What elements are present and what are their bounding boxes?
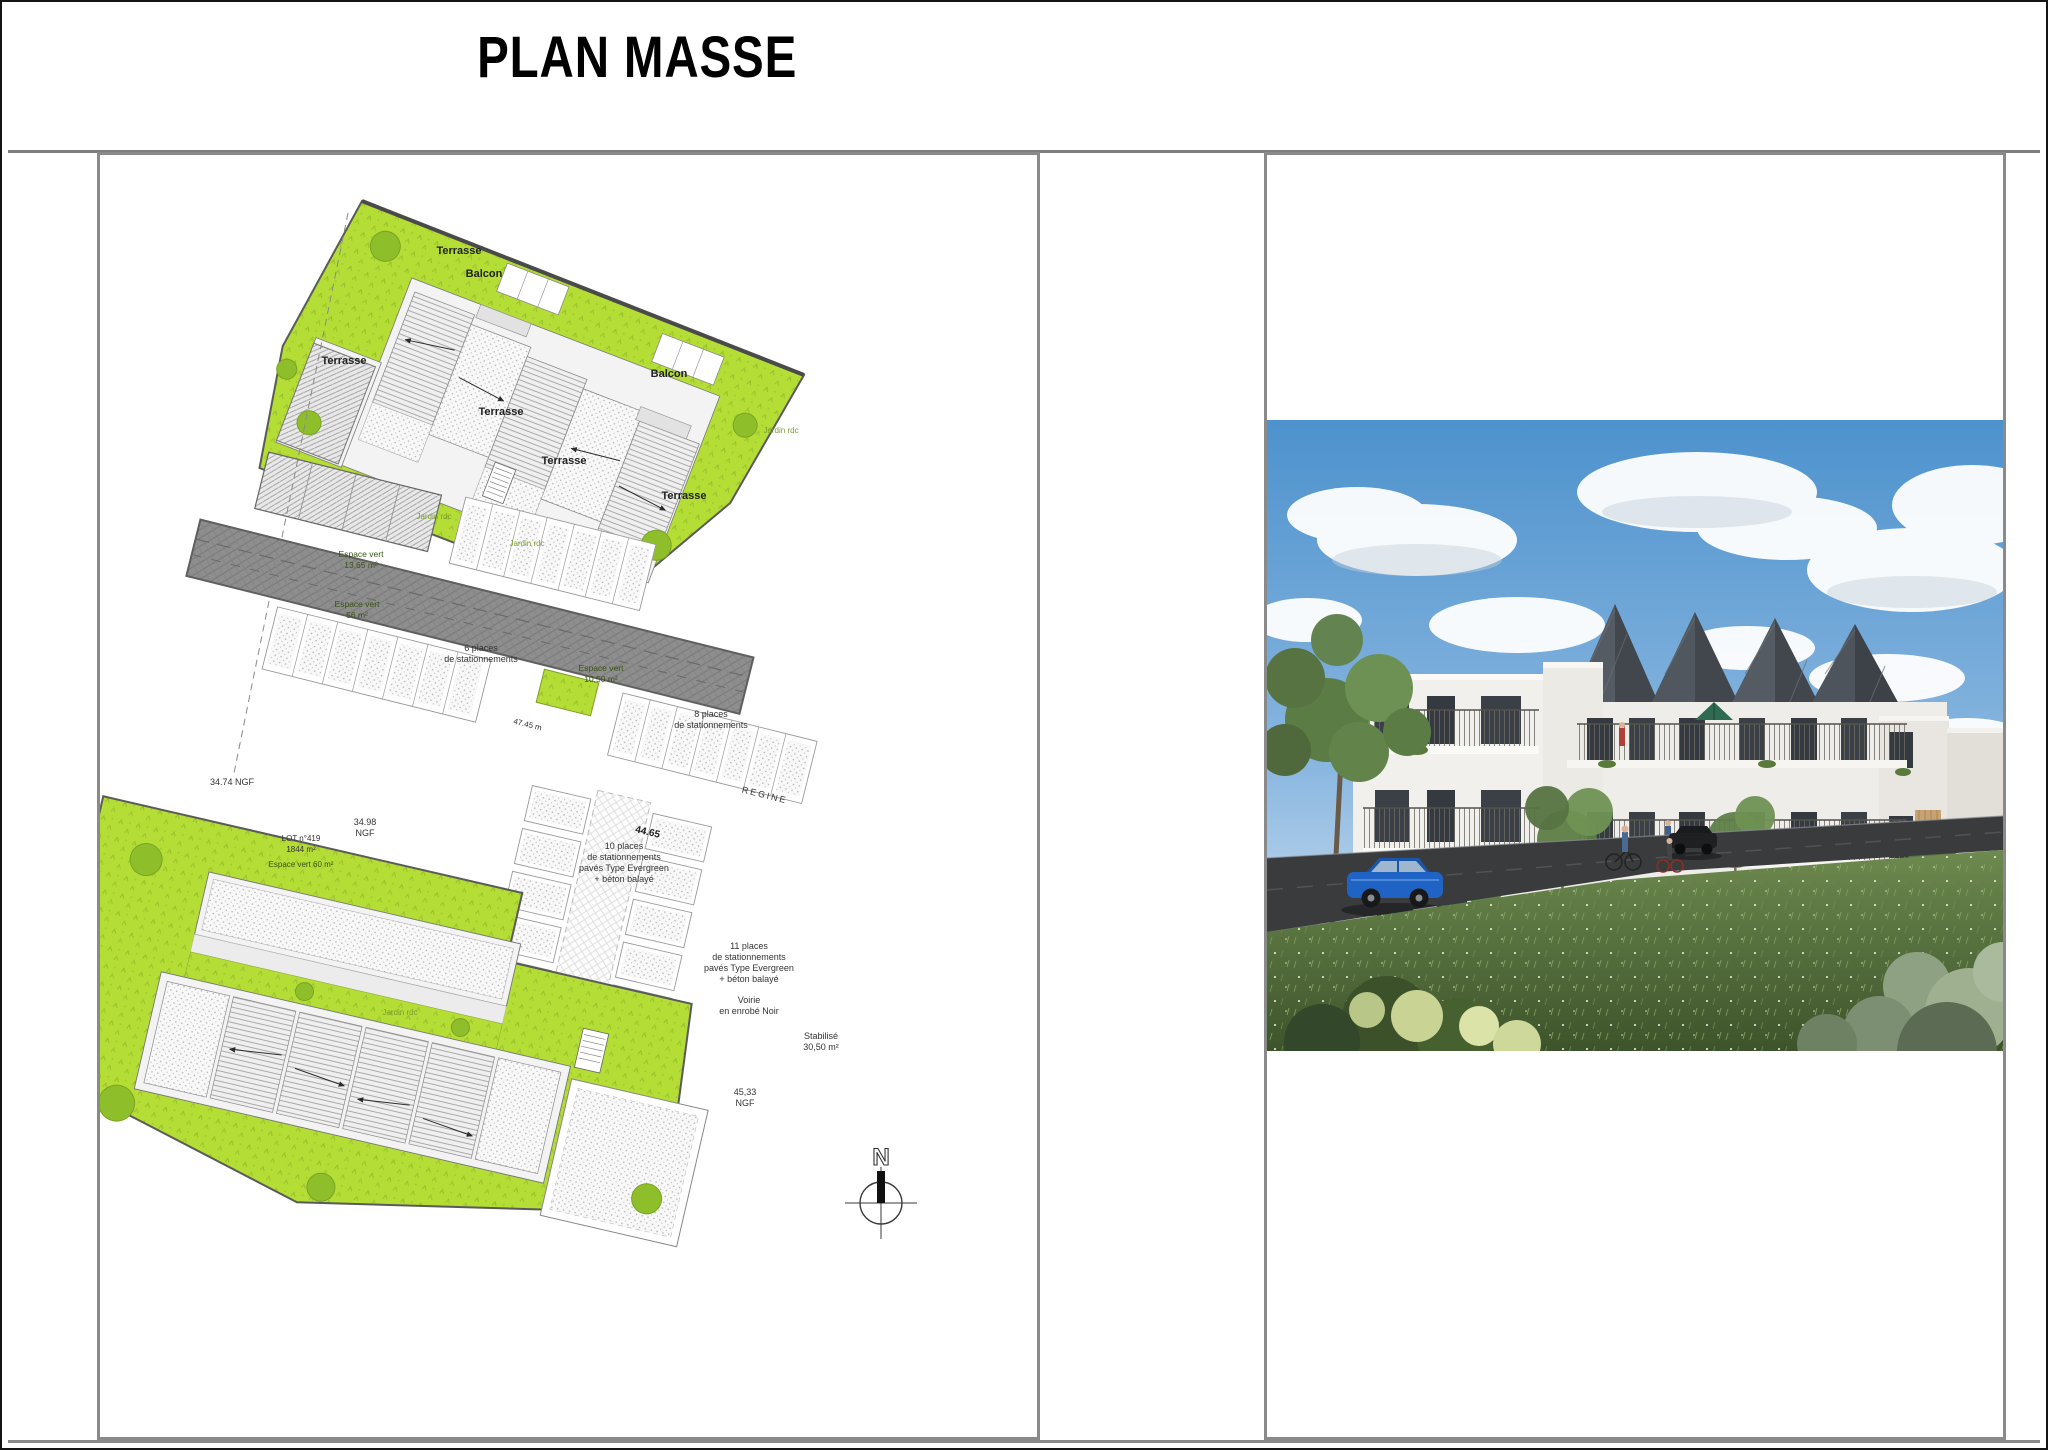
svg-text:1844 m²: 1844 m² (286, 845, 316, 854)
label-jardin: Jardin rdc (509, 539, 544, 548)
label-terrasse: Terrasse (661, 490, 706, 502)
label-ngf-4533: 45,33 (734, 1087, 757, 1097)
render-panel (1264, 152, 2006, 1440)
site-plan-drawing: Terrasse Balcon Terrasse Terrasse Terras… (100, 155, 1037, 1437)
label-jardin: Jardin rdc (382, 1008, 417, 1017)
svg-text:+ béton balayé: + béton balayé (719, 974, 778, 984)
label-parking-6: 6 places (464, 643, 498, 653)
site-plan-panel: Terrasse Balcon Terrasse Terrasse Terras… (97, 152, 1040, 1440)
label-espace-vert: Espace vert (335, 599, 381, 609)
label-lot: LOT n°419 (282, 834, 321, 843)
label-jardin: Jardin rdc (763, 426, 798, 435)
svg-text:en enrobé Noir: en enrobé Noir (719, 1006, 779, 1016)
bottom-rule (8, 1440, 2040, 1443)
label-parking-8: 8 places (694, 709, 728, 719)
svg-text:56 m²: 56 m² (346, 610, 368, 620)
label-parking-10: 10 places (605, 841, 644, 851)
svg-text:NGF: NGF (736, 1098, 756, 1108)
label-terrasse: Terrasse (541, 455, 586, 467)
label-espace-vert: Espace vert (339, 549, 385, 559)
label-jardin: Jardin rdc (416, 512, 451, 521)
label-parking-11: 11 places (730, 941, 768, 951)
title-bar: PLAN MASSE (2, 24, 1272, 91)
svg-text:pavés Type Evergreen: pavés Type Evergreen (579, 863, 669, 873)
north-arrow-icon: N (845, 1144, 917, 1239)
label-balcon: Balcon (651, 368, 688, 380)
label-espace-vert: Espace vert (579, 663, 625, 673)
label-terrasse: Terrasse (478, 406, 523, 418)
label-ngf-3498: 34.98 (354, 817, 377, 827)
label-ngf-3474: 34.74 NGF (210, 777, 255, 787)
label-balcon: Balcon (466, 268, 503, 280)
svg-text:Espace vert 60 m²: Espace vert 60 m² (269, 860, 334, 869)
svg-text:10,50 m²: 10,50 m² (584, 674, 618, 684)
label-terrasse: Terrasse (321, 355, 366, 367)
svg-text:13,65 m²: 13,65 m² (344, 560, 378, 570)
label-dim-4745: 47.45 m (512, 717, 543, 733)
svg-text:+ béton balayé: + béton balayé (594, 874, 653, 884)
sheet: PLAN MASSE (0, 0, 2048, 1450)
compass-n-label: N (872, 1144, 889, 1171)
svg-text:30,50 m²: 30,50 m² (803, 1042, 839, 1052)
building-render (1267, 420, 2003, 1051)
label-voirie: Voirie (738, 995, 761, 1005)
label-stabilise: Stabilisé (804, 1031, 838, 1041)
label-terrasse: Terrasse (436, 245, 481, 257)
svg-text:pavés Type Evergreen: pavés Type Evergreen (704, 963, 794, 973)
svg-text:NGF: NGF (356, 828, 376, 838)
page-title: PLAN MASSE (477, 24, 797, 91)
svg-text:de stationnements: de stationnements (674, 720, 748, 730)
svg-text:de stationnements: de stationnements (444, 654, 518, 664)
svg-text:de stationnements: de stationnements (712, 952, 786, 962)
svg-text:de stationnements: de stationnements (587, 852, 661, 862)
